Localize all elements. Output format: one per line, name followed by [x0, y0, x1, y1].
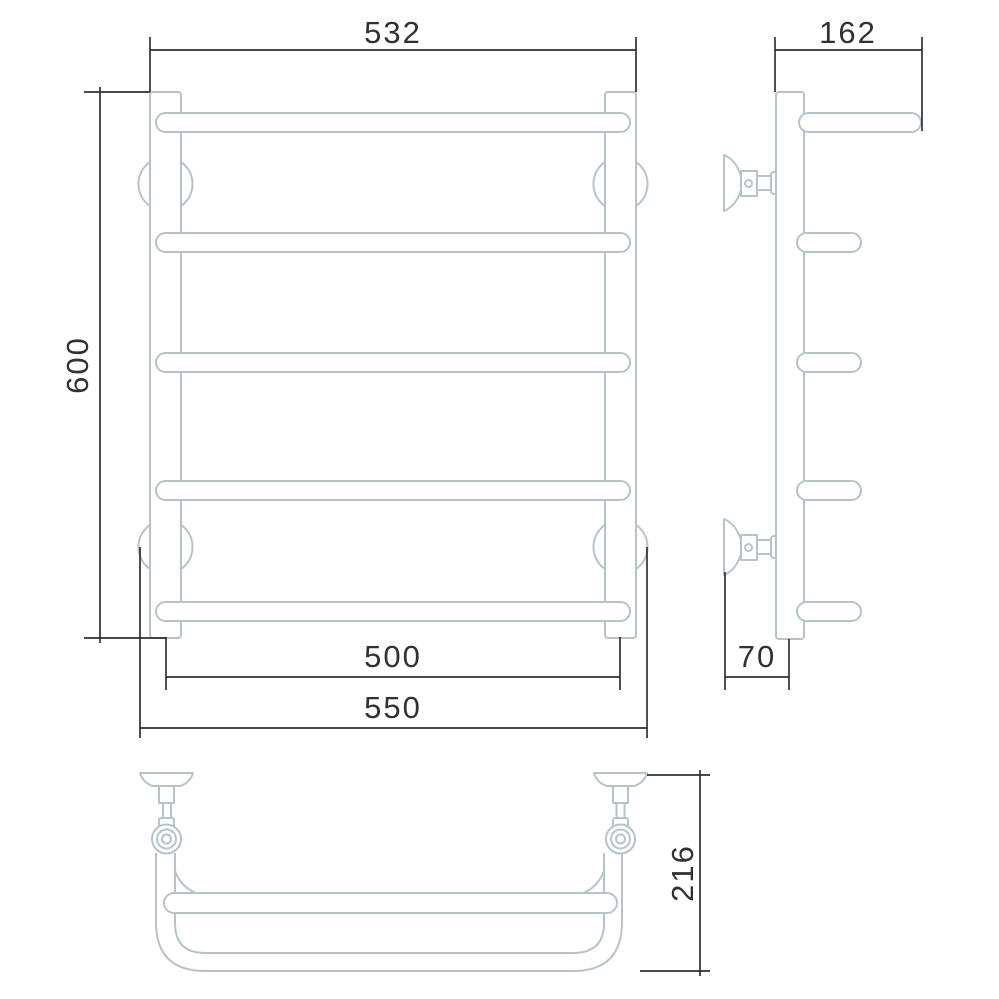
front-rail-4 — [156, 481, 630, 500]
bracket-block — [741, 535, 757, 560]
dim-label-216: 216 — [665, 844, 700, 902]
front-view — [139, 92, 648, 638]
dim-label-550: 550 — [364, 690, 422, 725]
bracket-wall-cup — [724, 519, 741, 575]
side-top-rail — [799, 113, 921, 132]
dim-500: 500 — [166, 637, 620, 690]
dim-label-532: 532 — [364, 15, 422, 50]
bracket-stem — [617, 803, 625, 818]
drawing-canvas: 532 600 500 550 162 — [0, 0, 999, 999]
bracket-stem — [757, 176, 771, 190]
bracket-block — [741, 171, 757, 196]
side-wall-bracket-top — [724, 155, 782, 211]
side-rail-stub-3 — [797, 353, 861, 372]
bracket-wall-cup — [724, 155, 741, 211]
plan-bracket-right — [594, 773, 647, 854]
bracket-block — [613, 786, 628, 803]
front-rail-5 — [156, 602, 630, 621]
bracket-stem — [163, 803, 171, 818]
side-view — [724, 92, 921, 639]
dim-label-500: 500 — [364, 639, 422, 674]
side-wall-bracket-bottom — [724, 519, 782, 575]
bracket-wall-plate — [140, 773, 193, 786]
plan-fillet-left — [175, 871, 196, 893]
front-rail-3 — [156, 353, 630, 372]
top-view — [140, 773, 647, 971]
bracket-stem — [757, 540, 771, 554]
side-rail-stub-2 — [797, 233, 861, 252]
bracket-wall-plate — [594, 773, 647, 786]
dim-label-600: 600 — [60, 336, 95, 394]
dim-label-162: 162 — [819, 15, 877, 50]
front-rail-1 — [156, 113, 630, 132]
bracket-block — [159, 786, 174, 803]
plan-bracket-left — [140, 773, 193, 854]
side-rail-stub-4 — [797, 481, 861, 500]
towel-rail-technical-drawing: 532 600 500 550 162 — [0, 0, 999, 999]
dim-216: 216 — [640, 770, 710, 976]
side-rail-stub-5 — [797, 602, 861, 621]
plan-fillet-right — [583, 871, 604, 893]
front-rail-2 — [156, 233, 630, 252]
plan-straight-rail — [164, 893, 617, 913]
dim-532: 532 — [150, 15, 636, 92]
dim-label-70: 70 — [738, 639, 776, 674]
product-views — [139, 92, 922, 971]
